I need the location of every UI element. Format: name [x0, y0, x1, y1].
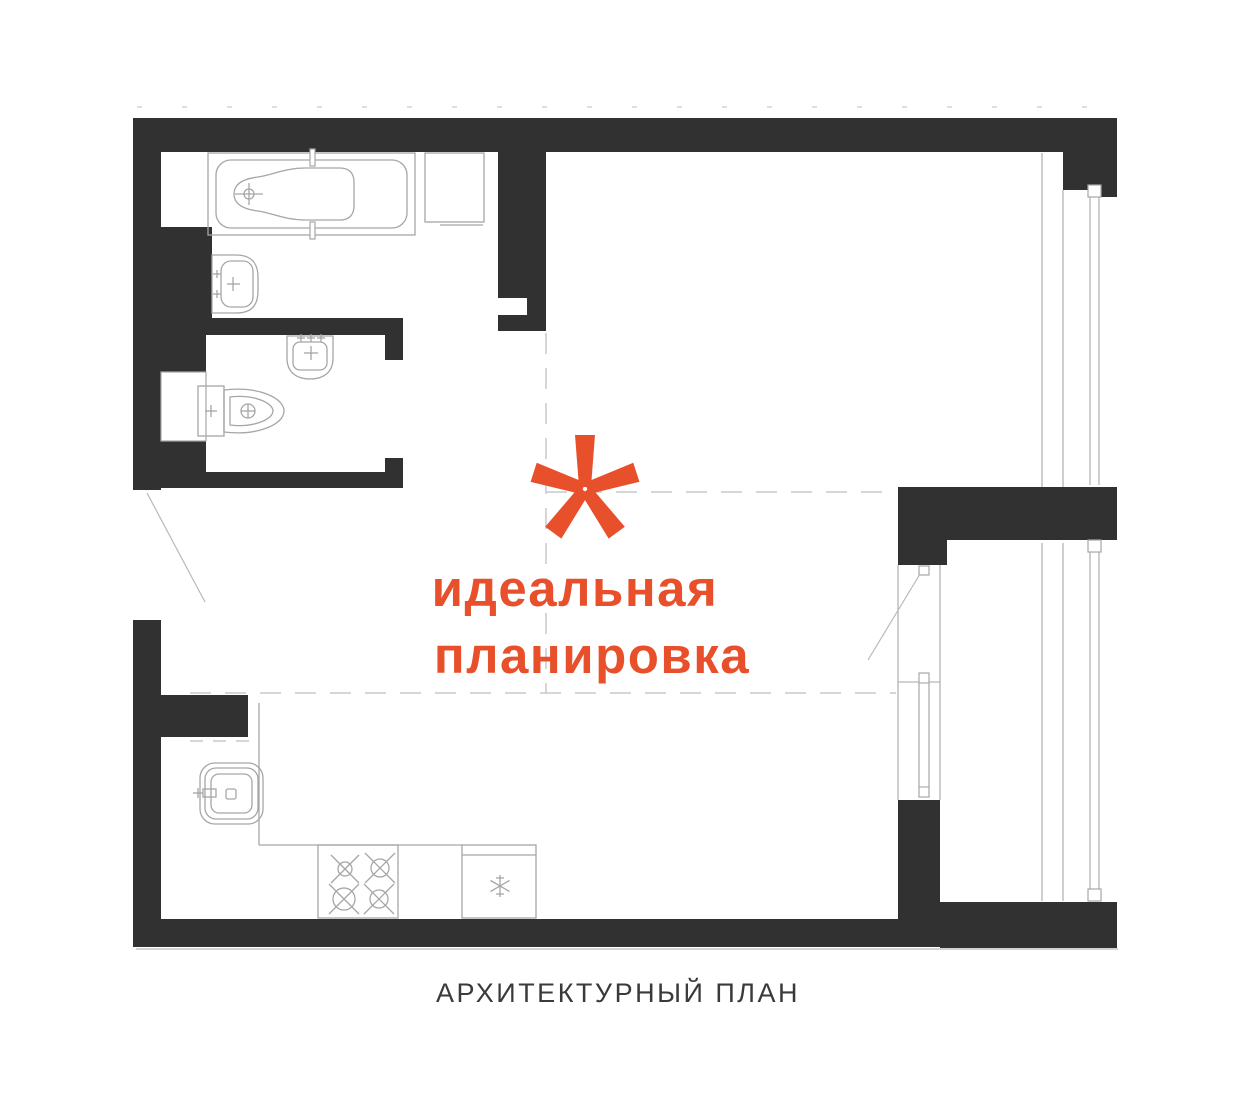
balcony-door-panel: [919, 673, 929, 797]
balcony-door-frame: [919, 566, 929, 575]
wall-bath-pilaster: [158, 227, 212, 318]
annotation-line1: идеальная: [432, 560, 719, 617]
plan-caption: АРХИТЕКТУРНЫЙ ПЛАН: [436, 977, 800, 1008]
annotation-line2: планировка: [434, 627, 750, 684]
stove: [318, 845, 398, 918]
wall-wc-door-stub-lower: [385, 458, 403, 488]
balcony-door: [868, 565, 940, 800]
bathroom-sink-faucet-icon: [213, 270, 240, 298]
bathtub: [208, 149, 415, 239]
wall-wc-top: [158, 318, 403, 335]
walls: [133, 118, 1117, 948]
wall-mid-right-deep: [898, 487, 947, 565]
kitchen-sink-drain: [226, 789, 236, 799]
wall-wc-left-lower: [158, 441, 206, 473]
stove-burner-icon: [329, 853, 395, 914]
wall-bathroom-living-bar: [498, 122, 546, 331]
snowflake-icon: [491, 875, 510, 897]
wall-bottom-right: [940, 902, 1117, 948]
wall-wc-door-stub-upper: [385, 318, 403, 360]
wall-balcony-pier: [898, 800, 940, 919]
floor-plan-page: идеальная планировка АРХИТЕКТУРНЫЙ ПЛАН: [0, 0, 1242, 1120]
wall-bottom: [133, 919, 940, 947]
wall-top: [133, 118, 1117, 152]
kitchen-counter: [259, 703, 462, 845]
wc-sink-faucet-icon: [297, 334, 325, 360]
wall-niche: [161, 372, 206, 441]
entrance-door-swing: [147, 493, 205, 602]
wall-kitchen-stub: [158, 695, 248, 737]
wc-sink: [287, 334, 333, 379]
washing-machine: [425, 153, 484, 225]
balcony-door-swing: [868, 574, 920, 660]
toilet: [198, 386, 284, 436]
window-lower: [1090, 552, 1099, 890]
floor-plan: идеальная планировка АРХИТЕКТУРНЫЙ ПЛАН: [0, 0, 1242, 1120]
refrigerator: [462, 845, 536, 918]
wall-left-lower: [133, 620, 161, 947]
wall-left-upper: [133, 118, 161, 490]
window-upper: [1090, 197, 1099, 485]
bathroom-sink: [212, 255, 258, 313]
asterisk-icon: [531, 435, 640, 539]
kitchen-sink: [193, 763, 263, 824]
wall-wc-bottom: [158, 472, 403, 488]
